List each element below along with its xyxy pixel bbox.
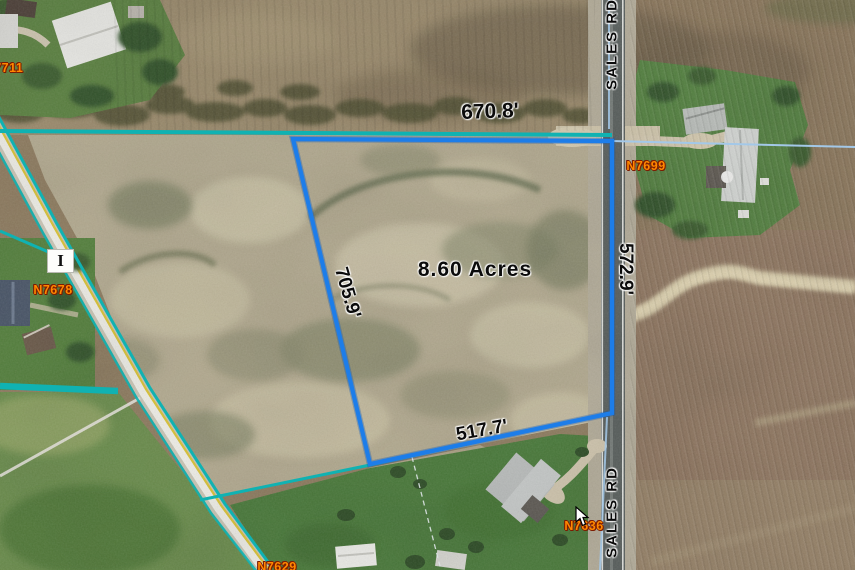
section-marker-label: I [57,251,64,271]
dimension-label-east: 572.9' [614,243,636,295]
address-label-n7678: N7678 [33,283,72,297]
property-line-n7678-south [0,386,118,391]
address-label-n7711: N7711 [0,61,23,75]
section-marker-box-icon[interactable]: I [47,249,74,273]
road-label-sales-rd-south: SALES RD [604,466,621,558]
address-label-n7699: N7699 [626,159,665,173]
parcel-line-light-blue-east [612,141,855,147]
fence-line-dashed [412,457,441,570]
address-label-n7629: N7629 [257,560,296,570]
mouse-pointer-icon [575,506,591,528]
road-label-sales-rd-north: SALES RD [604,0,621,90]
dimension-label-north: 670.8' [461,99,519,125]
aerial-map-canvas[interactable]: 670.8' 705.9' 572.9' 517.7' 8.60 Acres S… [0,0,855,570]
road-edge-teal-lines [0,110,271,570]
section-line-teal [0,131,612,135]
parcel-area-label: 8.60 Acres [418,258,532,282]
parcel-line-overlays [0,0,855,570]
